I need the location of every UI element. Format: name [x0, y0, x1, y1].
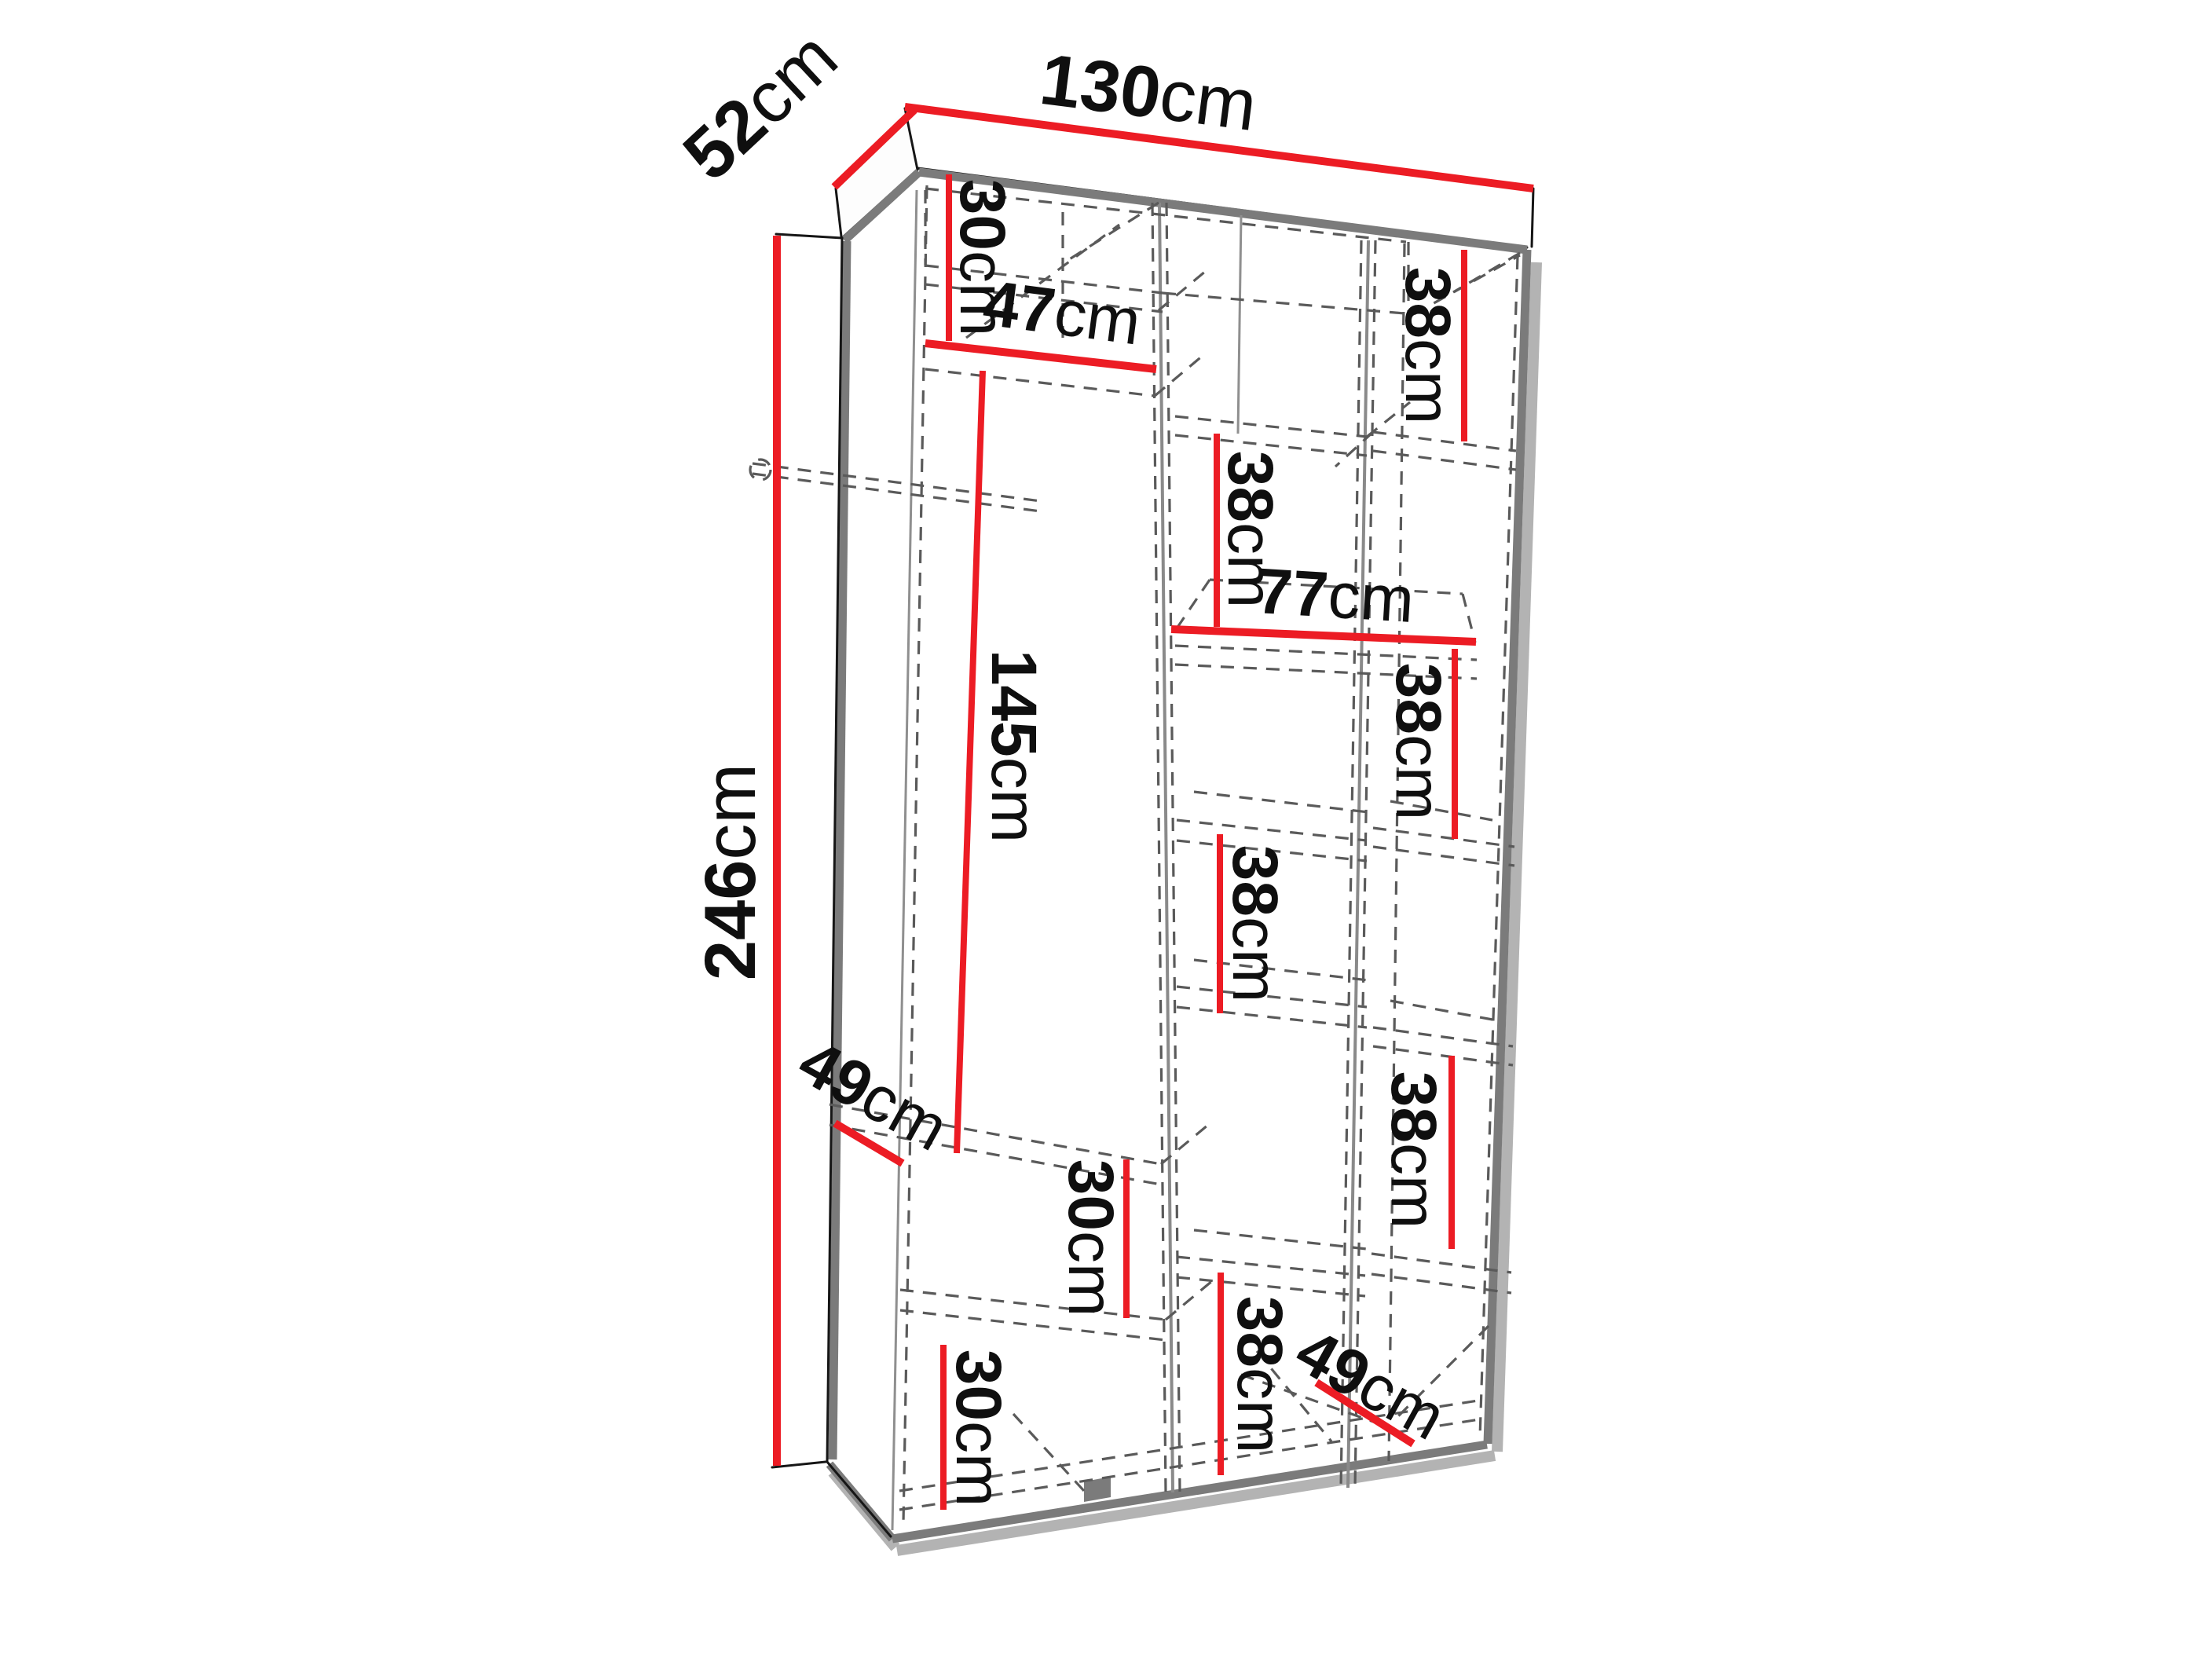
dimension-label-middle-mid-space: 38cm [1220, 845, 1291, 1003]
dimension-label-left-shelf-width: 47cm [980, 267, 1145, 358]
dimension-label-height: 246cm [690, 764, 771, 980]
dimension-label-middle-bottom-space: 38cm [1225, 1296, 1296, 1454]
dimension-label-right-mid-space: 38cm [1383, 663, 1455, 821]
back-panel-seam [1238, 215, 1241, 434]
diagram-canvas: 130cm 52cm 246cm 30cm 47cm 145cm 49cm 30… [0, 0, 2212, 1659]
left-panel-inner-edge [892, 190, 917, 1530]
cast-shadow [833, 262, 1536, 1551]
dimension-label-right-shelf-depth: 49cm [1284, 1315, 1457, 1454]
dimension-label-left-mid-space: 30cm [1056, 1159, 1127, 1317]
dimension-labels: 130cm 52cm 246cm 30cm 47cm 145cm 49cm 30… [668, 16, 1464, 1507]
dimension-label-depth: 52cm [668, 16, 852, 196]
dimension-line-middle-shelf-width [1171, 629, 1476, 642]
dimension-label-left-hanging-height: 145cm [979, 650, 1050, 843]
dimension-label-right-top-space: 38cm [1393, 267, 1464, 425]
divider-left [1159, 203, 1173, 1492]
dimension-label-left-bottom-space: 30cm [943, 1350, 1015, 1507]
wardrobe-dimension-diagram: 130cm 52cm 246cm 30cm 47cm 145cm 49cm 30… [0, 0, 2212, 1659]
dimension-label-right-low-space: 38cm [1379, 1071, 1450, 1229]
dimension-label-middle-shelf-width: 77cm [1254, 555, 1416, 635]
